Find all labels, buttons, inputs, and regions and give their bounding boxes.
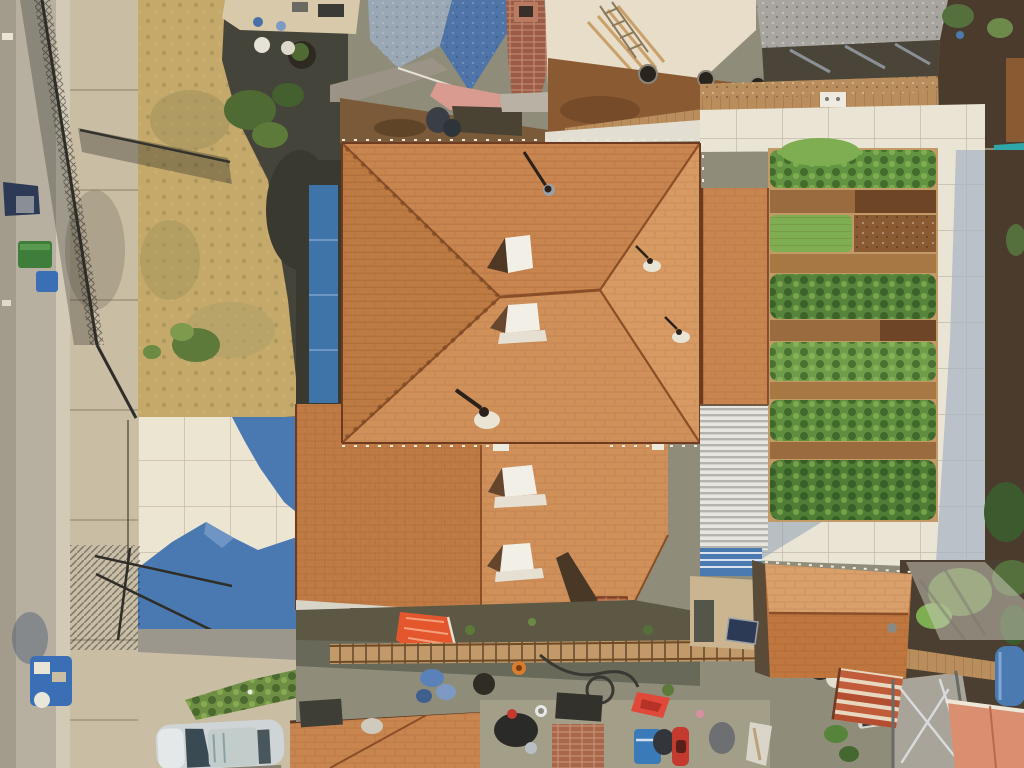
grass-patch-2	[140, 220, 200, 300]
bush-top-right-2	[987, 18, 1013, 38]
adu-ridge	[769, 613, 908, 614]
trash-bag-2	[443, 119, 461, 137]
blue-panel-strip	[309, 185, 338, 403]
white-bucket	[34, 692, 50, 708]
blue-trash-bin	[36, 271, 58, 292]
aerial-photo-stage	[0, 0, 1024, 768]
garden-rows	[770, 150, 936, 520]
right-wing	[700, 188, 768, 576]
parked-car	[155, 719, 285, 768]
gray-roof-texture	[756, 0, 948, 48]
chimney-apron	[500, 92, 550, 112]
blue-item	[956, 31, 964, 39]
wing-roof-texture	[702, 188, 768, 405]
overhang-plants	[780, 138, 860, 166]
car-rear-window	[257, 729, 271, 764]
adu-vent	[887, 623, 897, 633]
adu-roof-texture	[765, 564, 912, 678]
grass-patch	[150, 90, 230, 150]
chimney-flue	[519, 6, 533, 17]
green-bin-lid	[20, 244, 50, 250]
wood-strip	[1006, 58, 1024, 142]
car-hood	[157, 728, 185, 768]
gray-bin	[16, 196, 34, 213]
white-vent-box	[820, 92, 846, 107]
sidewalk	[70, 0, 138, 768]
street-left-edge	[0, 0, 16, 768]
culvert-pipe-1	[639, 65, 657, 83]
dirt-dark	[374, 119, 426, 137]
cart-box	[34, 662, 50, 674]
tan-box	[52, 672, 66, 682]
corrugated-roof	[700, 405, 768, 550]
road-marking	[2, 33, 13, 40]
upper-roof	[342, 140, 703, 446]
adu-roof	[752, 560, 912, 678]
road-marking-2	[2, 300, 11, 306]
salmon-wall	[948, 702, 1024, 768]
aerial-photo	[0, 0, 1024, 768]
navy-panel	[726, 618, 758, 644]
bush-top-right	[942, 4, 974, 28]
shed-doorway	[694, 600, 714, 642]
